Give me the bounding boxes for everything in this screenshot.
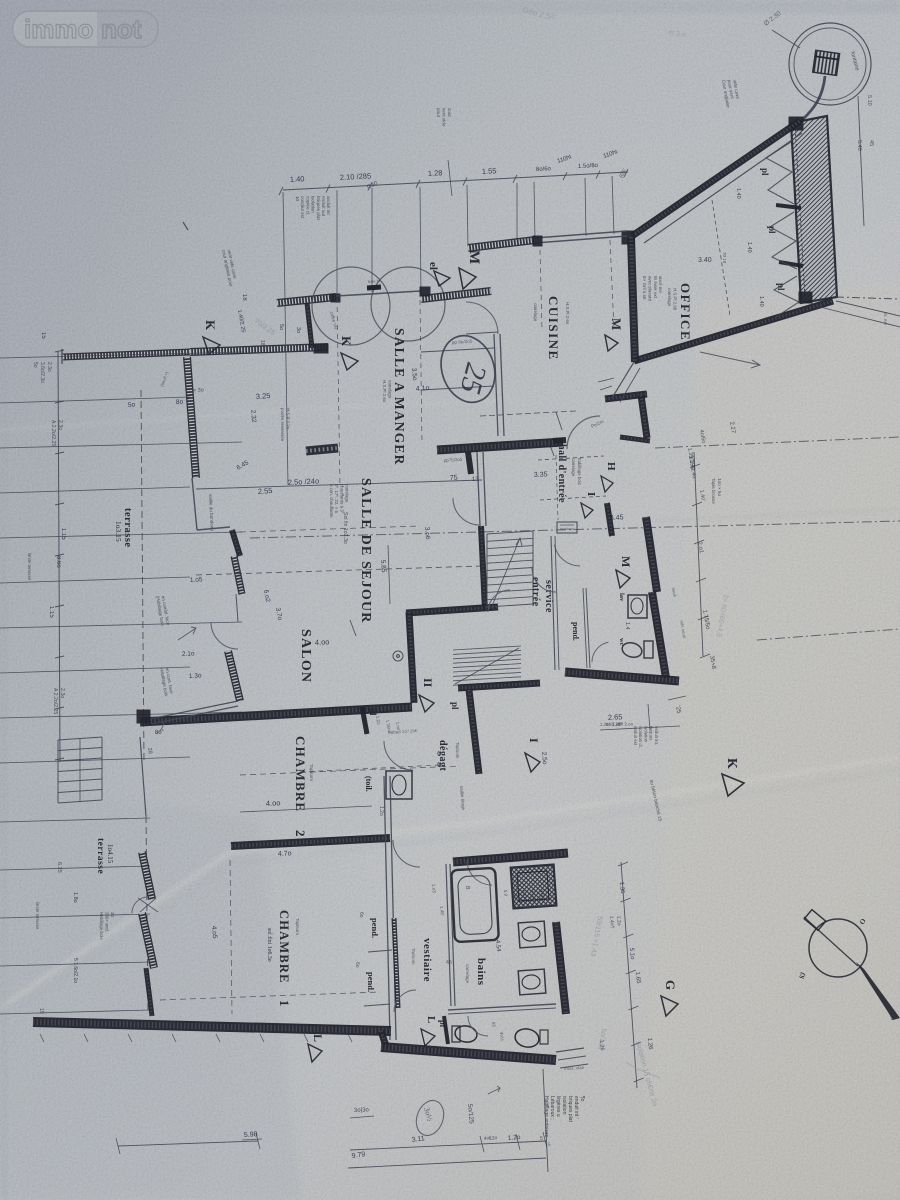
svg-text:75: 75 [450,475,458,482]
svg-text:5o: 5o [32,362,38,368]
svg-text:× 3o: × 3o [193,387,204,394]
svg-text:sol fini 1o6.3o: sol fini 1o6.3o [266,928,273,962]
svg-text:2.1o: 2.1o [182,650,195,658]
svg-text:à con. chauffante: à con. chauffante [329,484,334,518]
svg-text:2.3o: 2.3o [46,362,52,372]
svg-text:SALON: SALON [298,629,313,683]
svg-text:habillage bois: habillage bois [577,458,582,486]
svg-text:1.40: 1.40 [746,242,752,253]
svg-text:3.6o/2.3o: 3.6o/2.3o [39,362,45,383]
svg-text:2.55: 2.55 [258,486,273,496]
svg-text:4o½: 4o½ [499,1032,506,1042]
svg-text:1.2o: 1.2o [378,806,384,816]
svg-text:5.85: 5.85 [379,560,387,574]
svg-text:2.5o /24o: 2.5o /24o [288,476,320,487]
svg-text:CHAMBRE: CHAMBRE [277,910,291,984]
svg-text:1.65: 1.65 [634,972,641,985]
svg-text:1.15: 1.15 [48,606,54,618]
svg-text:2º. 17º. 22. × 5: 2º. 17º. 22. × 5 [334,484,339,514]
svg-text:8.6o: 8.6o [55,556,61,568]
svg-text:4.5o': 4.5o' [530,890,536,900]
svg-text:45: 45 [446,960,452,966]
svg-text:10: 10 [295,196,300,202]
svg-text:isolation cl.: isolation cl. [638,726,643,748]
svg-text:1o3.15: 1o3.15 [114,521,123,542]
svg-text:E× Gril à 40: E× Gril à 40 [642,276,647,300]
svg-text:condiut est: condiut est [300,196,305,219]
svg-text:1.4: 1.4 [624,622,630,630]
svg-text:bains: bains [475,958,487,986]
svg-text:2.3o: 2.3o [59,688,65,698]
svg-text:1.8o: 1.8o [72,892,78,903]
svg-text:Tapisom: Tapisom [455,742,460,759]
svg-text:1o4.15: 1o4.15 [106,844,114,864]
svg-text:4.54: 4.54 [494,940,501,953]
svg-text:1.15: 1.15 [60,528,66,540]
svg-text:30: 30 [110,912,115,917]
svg-text:carrelage: carrelage [571,458,576,477]
svg-text:6o: 6o [354,962,360,968]
svg-text:1.40: 1.40 [735,188,741,199]
svg-text:1.26: 1.26 [646,1038,653,1051]
svg-text:limite terrasse: limite terrasse [35,902,40,930]
svg-text:1.o5: 1.o5 [190,576,203,584]
svg-text:1.36: 1.36 [618,882,625,895]
svg-text:H.S.Pl 2.6o: H.S.Pl 2.6o [382,380,387,403]
svg-text:carrelage: carrelage [667,288,672,307]
svg-text:vent vide: vent vide [441,108,446,127]
svg-text:1.3o: 1.3o [189,672,202,680]
svg-text:12o: 12o [489,1135,498,1142]
svg-text:8º/ 2.oo: 8º/ 2.oo [618,721,634,727]
svg-text:W évier ext: W évier ext [653,276,658,299]
svg-text:1.o8': 1.o8' [512,890,518,900]
svg-text:K: K [339,336,354,347]
svg-text:1.5o/8o: 1.5o/8o [578,163,599,170]
svg-text:5: 5 [540,1136,544,1142]
svg-text:isolation: isolation [643,726,648,743]
svg-text:pl: pl [776,283,786,291]
svg-text:pl: pl [450,702,460,710]
svg-text:chauffante à 3º: chauffante à 3º [339,484,344,514]
svg-text:pend.: pend. [571,622,580,641]
svg-text:H: H [605,462,617,471]
svg-text:3o: 3o [295,327,301,333]
svg-text:légères u: légères u [555,1096,561,1117]
svg-text:Tapisom: Tapisom [309,764,314,781]
svg-text:2.41': 2.41' [521,890,527,900]
svg-text:briques: briques [649,726,654,741]
svg-text:W. ext: W. ext [883,312,888,325]
svg-text:4.1o: 4.1o [416,385,430,393]
svg-text:Tapis brosse: Tapis brosse [711,478,716,504]
svg-text:5.10: 5.10 [866,95,872,106]
svg-text:hall d'entrée: hall d'entrée [556,444,567,503]
svg-text:pour: pour [436,108,441,118]
svg-text:anduit int: anduit int [326,196,331,215]
svg-text:5o: 5o [278,324,284,330]
svg-text:1.2o: 1.2o [615,916,622,926]
svg-text:2: 2 [293,830,308,837]
svg-text:15: 15 [40,332,46,339]
svg-text:H.S.P 2.2o: H.S.P 2.2o [285,408,290,430]
svg-text:3.25: 3.25 [256,391,271,401]
svg-text:2.10 /285: 2.10 /285 [340,171,372,182]
svg-text:briques plat: briques plat [567,1096,573,1122]
svg-text:baie m: baie m [368,278,381,284]
svg-text:Tapisom: Tapisom [295,918,300,935]
svg-text:1.40: 1.40 [290,174,305,184]
svg-text:8o: 8o [176,399,184,406]
svg-text:70 10: 70 10 [722,252,727,264]
svg-text:pl: pl [767,226,777,234]
svg-text:6o: 6o [358,912,364,918]
svg-text:28: 28 [146,747,153,754]
svg-text:14o × 5o: 14o × 5o [717,478,722,496]
svg-text:18: 18 [259,340,265,346]
svg-text:63: 63 [491,1022,496,1028]
svg-text:H.S.Pl 2.60: H.S.Pl 2.60 [673,288,678,311]
svg-text:immo: immo [24,14,93,44]
svg-text:Habillage bois: Habillage bois [99,912,104,940]
svg-text:OFFICE: OFFICE [678,283,693,341]
svg-text:Tapisom: Tapisom [411,948,416,965]
svg-text:200× ancl.: 200× ancl. [104,912,109,932]
svg-text:K: K [724,758,739,769]
svg-text:5.1o: 5.1o [628,948,635,961]
svg-text:CHAMBRE: CHAMBRE [293,736,308,812]
svg-text:4.7o: 4.7o [278,850,292,858]
svg-text:not: not [101,14,142,44]
svg-text:M: M [466,250,482,264]
svg-text:1.4o†: 1.4o† [608,916,615,929]
svg-text:5 1.6o/2.1o: 5 1.6o/2.1o [72,958,78,983]
svg-text:A 2.2o/2.25: A 2.2o/2.25 [50,420,56,446]
svg-text:3.35: 3.35 [534,471,548,479]
svg-text:1: 1 [277,1000,291,1006]
svg-text:(toil.: (toil. [364,776,373,792]
svg-text:carrelage: carrelage [388,380,393,399]
svg-text:el: el [427,262,439,270]
svg-text:5.40: 5.40 [856,140,862,151]
svg-text:5o: 5o [128,402,136,409]
svg-text:enduit int ': enduit int ' [573,1096,579,1119]
svg-text:isolation: isolation [311,196,316,213]
svg-text:5.98: 5.98 [244,1131,258,1139]
svg-text:sout: sout [447,108,452,117]
svg-text:8o/6o: 8o/6o [536,166,552,173]
svg-text:3.5o: 3.5o [410,368,418,382]
svg-text:wc: wc [618,638,625,646]
svg-text:vestiaire: vestiaire [421,938,433,982]
svg-text:terrasse: terrasse [95,838,105,874]
svg-text:1.55: 1.55 [482,166,497,176]
svg-text:poutre renversée: poutre renversée [280,408,285,442]
svg-text:Lébaroux ;: Lébaroux ; [549,1096,555,1120]
svg-text:enduit ext: enduit ext [633,726,638,746]
svg-text:pl: pl [368,708,378,716]
svg-text:briques plat: briques plat [316,196,321,220]
svg-text:lav: lav [618,593,625,602]
svg-text:3o|3o: 3o|3o [354,1107,370,1114]
svg-text:1.26: 1.26 [598,1040,605,1051]
svg-text:4.o5: 4.o5 [210,926,218,940]
svg-text:L: L [311,1034,325,1042]
svg-text:ancé me: ancé me [658,276,663,293]
svg-text:3.o6: 3.o6 [423,527,431,541]
svg-text:carrelage: carrelage [345,484,350,503]
svg-text:carrelage: carrelage [533,303,538,322]
svg-text:A 2.2o/2.25: A 2.2o/2.25 [52,688,58,714]
svg-text:II: II [421,678,435,688]
svg-text:1.2o: 1.2o [508,1134,522,1142]
svg-text:8.8o': 8.8o' [539,890,545,900]
svg-text:5.9: 5.9 [503,890,509,897]
svg-text:M: M [609,318,624,330]
svg-text:copiée cl.: copiée cl. [305,196,310,215]
svg-text:15: 15 [38,1008,45,1015]
svg-text:1.28: 1.28 [428,168,443,178]
svg-text:¶o: ¶o [579,1096,585,1102]
svg-text:45: 45 [868,140,874,146]
svg-text:2.3o: 2.3o [57,420,63,430]
svg-text:3.40: 3.40 [698,257,712,264]
svg-text:1.48': 1.48' [439,906,445,916]
svg-text:avec placard: avec placard [647,276,652,301]
svg-text:enduit out: enduit out [321,196,326,217]
svg-text:4.oo: 4.oo [266,798,281,808]
svg-text:1.o3: 1.o3 [431,884,437,894]
svg-text:4.65: 4.65 [632,326,638,338]
svg-text:K: K [203,320,218,331]
svg-text:H.S.Pl 2.6o: H.S.Pl 2.6o [565,302,570,325]
svg-text:pend.: pend. [366,972,376,992]
svg-text:2.32: 2.32 [249,410,257,424]
svg-text:limite terrasse: limite terrasse [27,553,32,581]
svg-text:enduit int.: enduit int. [654,726,659,745]
svg-text:carrelage: carrelage [465,964,470,984]
svg-text:6.25: 6.25 [56,862,62,873]
svg-text:pl: pl [760,168,770,176]
svg-text:B: B [464,886,470,890]
svg-text:M: M [619,556,633,567]
svg-text:SALLE A MANGER: SALLE A MANGER [392,328,407,466]
svg-text:I: I [585,492,597,496]
svg-text:Sol fin 1o3.3o: Sol fin 1o3.3o [342,512,348,544]
svg-text:SALLE DE SEJOUR: SALLE DE SEJOUR [358,478,373,624]
svg-text:pend.: pend. [370,918,380,938]
svg-text:G: G [663,980,678,990]
svg-text:18: 18 [241,294,247,301]
svg-text:L: L [425,1016,437,1023]
svg-text:1.40: 1.40 [758,296,764,307]
svg-text:4.oo: 4.oo [315,637,330,647]
svg-text:2.5o: 2.5o [540,752,548,766]
svg-text:I: I [527,738,541,743]
svg-text:isolation: isolation [561,1096,567,1115]
svg-text:CUISINE: CUISINE [546,296,561,361]
